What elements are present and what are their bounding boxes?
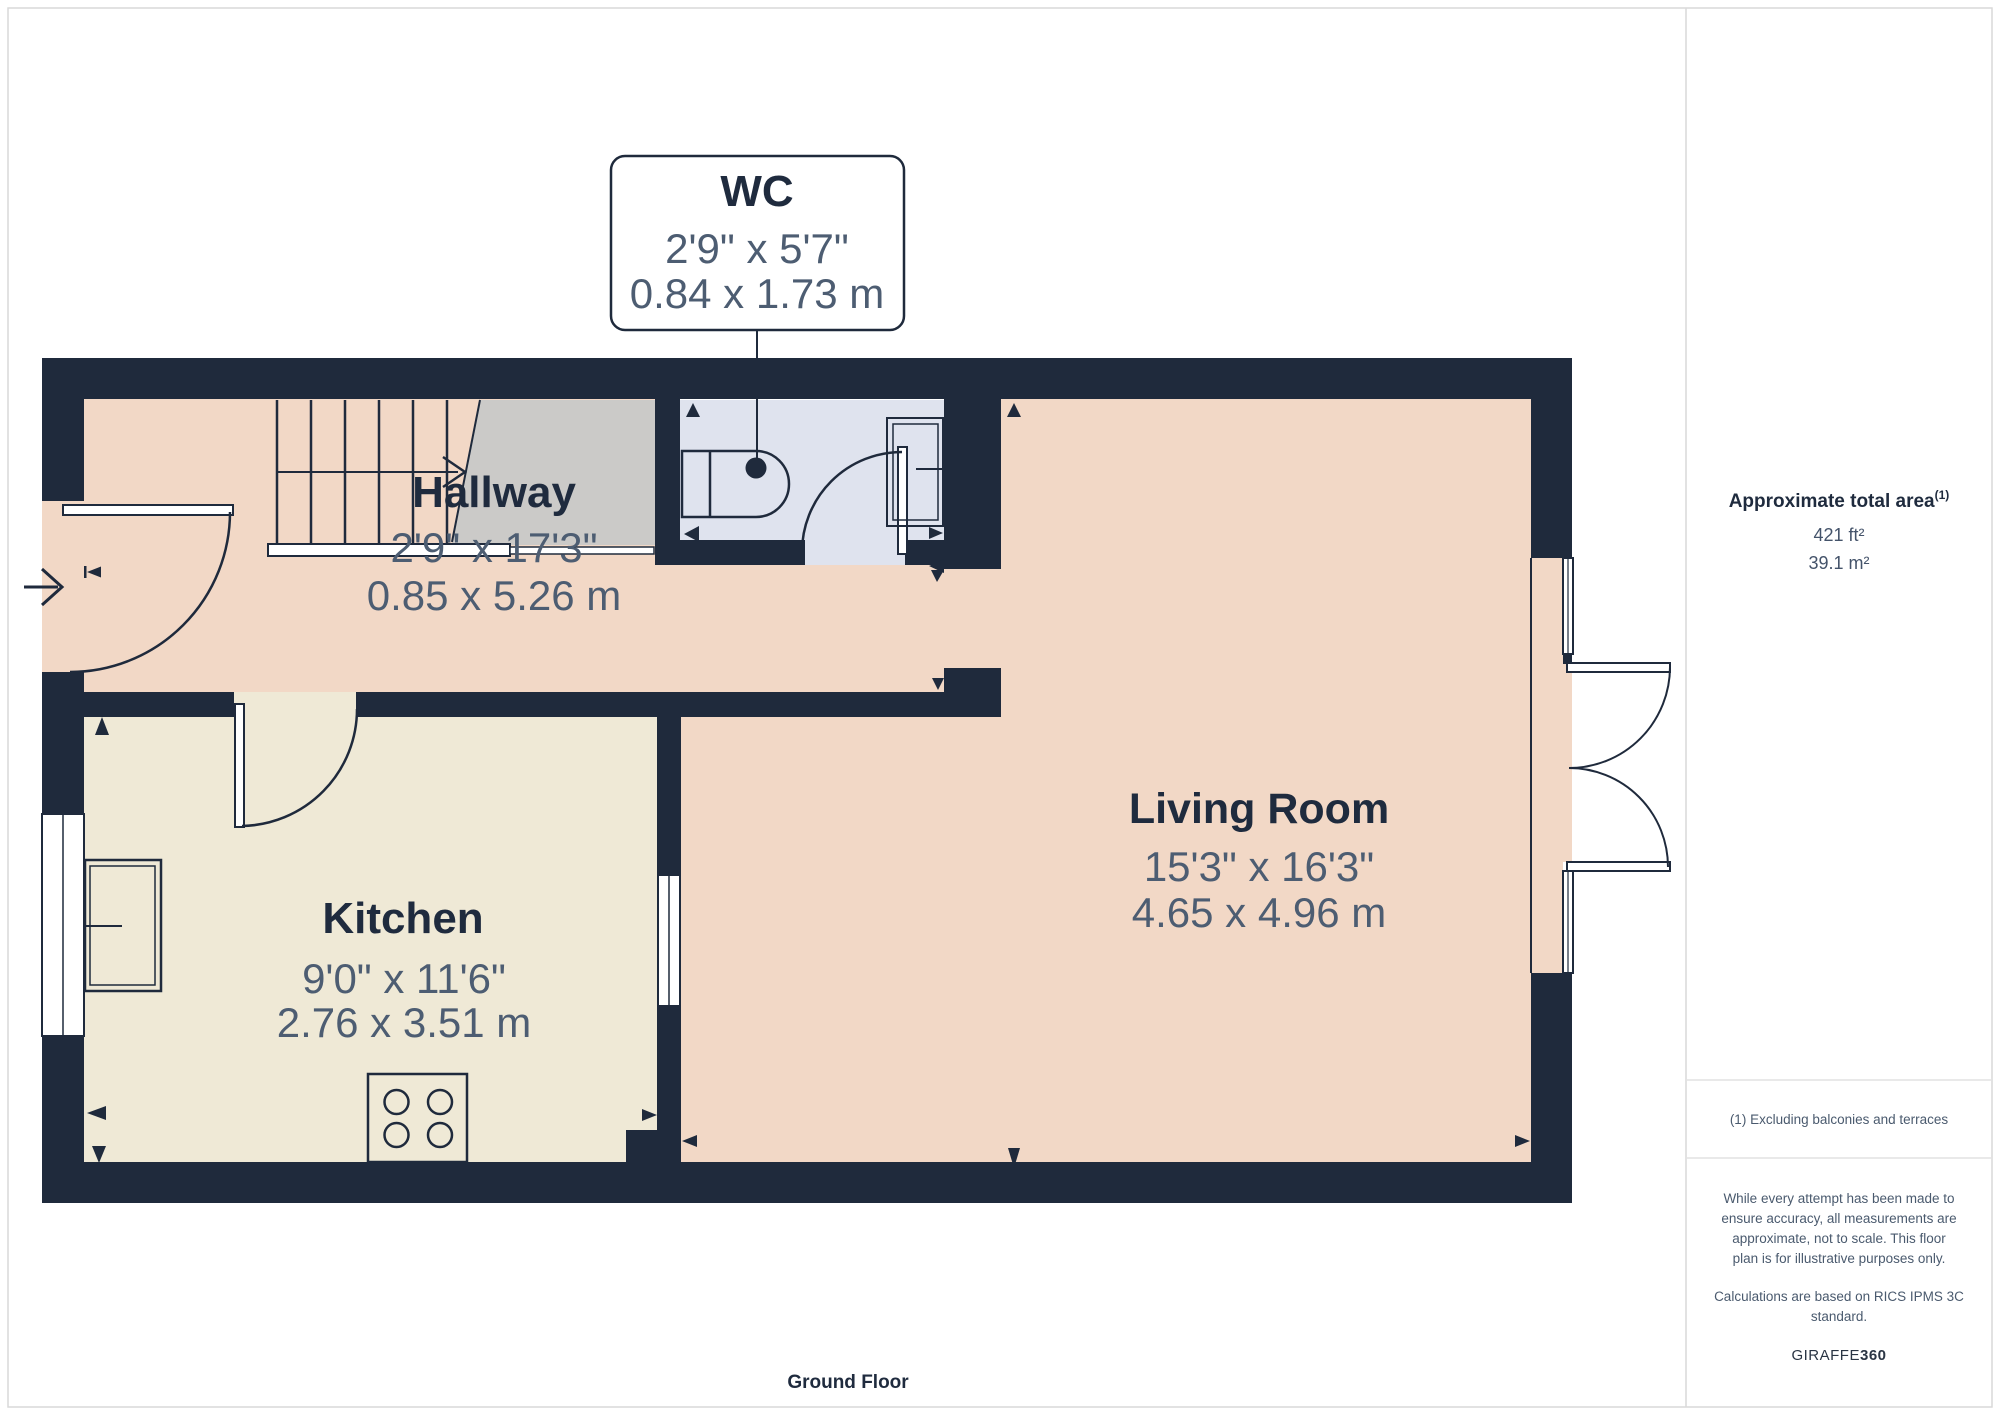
svg-text:2'9" x 17'3": 2'9" x 17'3" — [391, 524, 598, 571]
svg-text:standard.: standard. — [1811, 1309, 1867, 1324]
svg-text:2'9" x 5'7": 2'9" x 5'7" — [665, 225, 849, 272]
svg-text:Approximate total area(1): Approximate total area(1) — [1729, 488, 1950, 512]
svg-text:2.76 x 3.51 m: 2.76 x 3.51 m — [277, 999, 531, 1046]
svg-text:ensure accuracy, all measureme: ensure accuracy, all measurements are — [1721, 1211, 1956, 1226]
svg-text:GIRAFFE360: GIRAFFE360 — [1791, 1347, 1886, 1364]
svg-text:plan is for illustrative purpo: plan is for illustrative purposes only. — [1733, 1251, 1946, 1266]
svg-text:WC: WC — [720, 167, 793, 216]
svg-text:4.65 x 4.96 m: 4.65 x 4.96 m — [1132, 889, 1386, 936]
svg-text:0.85 x 5.26 m: 0.85 x 5.26 m — [367, 572, 621, 619]
svg-text:15'3" x 16'3": 15'3" x 16'3" — [1144, 843, 1374, 890]
svg-text:Calculations are based on RICS: Calculations are based on RICS IPMS 3C — [1714, 1289, 1964, 1304]
svg-text:9'0" x 11'6": 9'0" x 11'6" — [302, 955, 506, 1002]
svg-text:(1) Excluding balconies and te: (1) Excluding balconies and terraces — [1730, 1112, 1949, 1127]
svg-text:421 ft²: 421 ft² — [1813, 525, 1864, 545]
svg-text:Hallway: Hallway — [412, 468, 576, 517]
svg-text:39.1 m²: 39.1 m² — [1808, 553, 1869, 573]
svg-text:While every attempt has been m: While every attempt has been made to — [1723, 1191, 1954, 1206]
svg-text:approximate, not to scale. Thi: approximate, not to scale. This floor — [1732, 1231, 1946, 1246]
svg-text:Living Room: Living Room — [1129, 785, 1389, 833]
svg-text:Ground Floor: Ground Floor — [787, 1372, 909, 1393]
svg-text:0.84 x 1.73 m: 0.84 x 1.73 m — [630, 270, 884, 317]
svg-text:Kitchen: Kitchen — [322, 894, 483, 943]
